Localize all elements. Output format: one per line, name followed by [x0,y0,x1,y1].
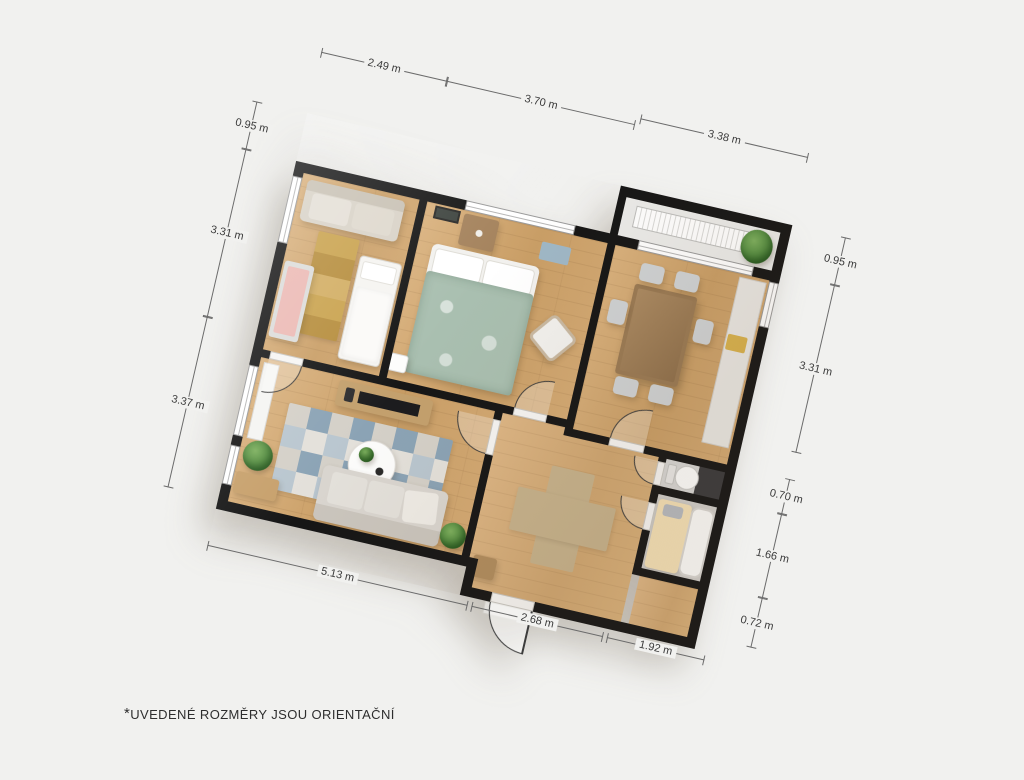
dimension-label: 0.72 m [735,612,778,633]
sofa-cushion [326,471,368,510]
dimension-label: 3.38 m [703,127,746,148]
dimension-label: 0.95 m [230,115,273,136]
floor-plan [209,113,792,649]
dimension-left-2: 3.31 m [207,149,247,317]
dimension-right-2: 3.31 m [795,285,835,453]
dresser-knob [475,229,483,237]
dimension-top-2: 3.70 m [447,81,635,125]
dimension-label: 0.95 m [819,251,862,272]
dimension-right-5: 0.72 m [750,598,762,648]
speaker [343,387,355,403]
dimension-left-3: 3.37 m [167,317,207,488]
pillow [359,261,397,286]
rotated-scene: 2.49 m 3.70 m 3.38 m 0.95 m 3.31 m 3.37 … [120,10,981,780]
dimension-right-1: 0.95 m [834,237,846,285]
floor-plan-page: 2.49 m 3.70 m 3.38 m 0.95 m 3.31 m 3.37 … [0,0,1024,768]
dimension-label: 3.31 m [794,359,837,380]
footnote: *UVEDENÉ ROZMĚRY JSOU ORIENTAČNÍ [124,707,395,722]
dimension-left-1: 0.95 m [245,101,257,149]
sofa-cushion [363,480,405,519]
dimension-label: 1.66 m [751,546,794,567]
dimension-label: 2.49 m [363,56,406,77]
dimension-right-3: 0.70 m [781,479,790,514]
dimension-label: 3.31 m [205,223,248,244]
table-plant [357,446,375,464]
dimension-label: 3.37 m [166,392,209,413]
dimension-label: 0.70 m [765,486,808,507]
dimension-top-3: 3.38 m [640,118,808,158]
dimension-label: 3.70 m [519,92,562,113]
dimension-top-1: 2.49 m [321,52,447,82]
footnote-text: UVEDENÉ ROZMĚRY JSOU ORIENTAČNÍ [130,707,395,722]
sofa-throw [401,490,439,526]
dimension-right-4: 1.66 m [762,514,782,598]
cup [375,467,385,477]
